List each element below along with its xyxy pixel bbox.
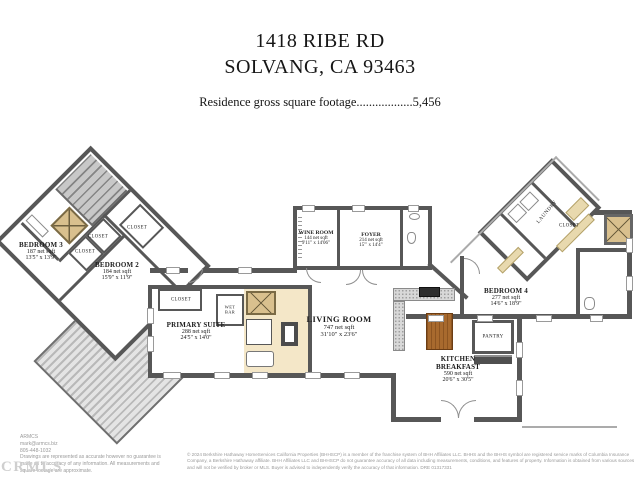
window: [147, 336, 154, 352]
room-name: BEDROOM 2: [95, 261, 139, 269]
closet-label: CLOSET: [88, 235, 108, 240]
door-arc: [346, 270, 361, 285]
address-line2: SOLVANG, CA 93463: [0, 54, 640, 80]
preparer-name: ARMCS: [20, 434, 172, 441]
room-label-living-room: LIVING ROOM 747 net sqft 31'10" x 23'6": [306, 314, 371, 338]
closet-label: CLOSET: [75, 250, 95, 255]
room-sqft: 747 net sqft: [306, 324, 371, 331]
wall: [474, 417, 522, 422]
room-dims: 20'6" x 30'5": [436, 377, 480, 383]
room-label-bedroom2: BEDROOM 2 184 net sqft 15'9" x 11'9": [95, 261, 139, 281]
wall: [517, 316, 522, 422]
sink: [409, 213, 420, 220]
window: [626, 238, 633, 253]
preparer-email: mark@armcs.biz: [20, 441, 172, 448]
toilet: [584, 297, 595, 310]
window: [238, 267, 252, 274]
room-name: BREAKFAST: [436, 363, 480, 371]
door-arc: [188, 268, 203, 283]
door-arc: [458, 400, 476, 418]
window: [166, 267, 180, 274]
window: [214, 372, 230, 379]
door-arc: [306, 268, 321, 283]
closet-label: CLOSET: [171, 298, 191, 303]
room-label-wine-room: WINE ROOM 144 net sqft 9'11" x 14'06": [299, 230, 334, 246]
door-arc: [441, 400, 459, 418]
room-dims: 24'5" x 14'0": [167, 335, 226, 341]
wall: [337, 210, 340, 266]
room-label-primary-suite: PRIMARY SUITE 288 net sqft 24'5" x 14'0": [167, 321, 226, 341]
address-line1: 1418 RIBE RD: [0, 28, 640, 54]
window: [516, 342, 523, 358]
page-title: 1418 RIBE RD SOLVANG, CA 93463: [0, 28, 640, 80]
fireplace: [281, 322, 298, 346]
kitchen-counter: [393, 301, 405, 351]
wall: [391, 373, 396, 422]
square-footage-line: Residence gross square footage..........…: [0, 95, 640, 110]
pantry-label: PANTRY: [482, 335, 503, 340]
wall: [400, 210, 403, 266]
window: [516, 380, 523, 396]
door-arc: [464, 258, 480, 274]
room-dims: 9'11" x 14'06": [299, 241, 334, 246]
window: [352, 205, 365, 212]
bathtub: [246, 351, 274, 367]
room-name: KITCHEN: [436, 355, 480, 363]
window: [302, 205, 315, 212]
preparer-phone: 805-448-1032: [20, 448, 172, 455]
wall: [391, 417, 441, 422]
toilet: [407, 232, 416, 244]
wall: [576, 250, 580, 316]
room-label-bedroom4: BEDROOM 4 277 net sqft 14'6" x 18'9": [484, 287, 528, 307]
stove: [419, 287, 440, 297]
water-closet: [246, 319, 272, 345]
room-label-bedroom3: BEDROOM 3 187 net sqft 13'5" x 13'9": [19, 241, 63, 261]
room-name: LIVING ROOM: [306, 314, 371, 324]
window: [408, 205, 419, 212]
wet-bar-label: WET BAR: [222, 305, 238, 316]
shower: [246, 291, 276, 315]
crmls-watermark: CRMLS: [1, 459, 63, 476]
window: [590, 315, 603, 322]
room-name: BEDROOM 3: [19, 241, 63, 249]
room-dims: 31'10" x 23'6": [306, 331, 371, 338]
room-dims: 13'5" x 13'9": [19, 255, 63, 261]
door-arc: [362, 270, 377, 285]
room-dims: 15'9" x 11'9": [95, 275, 139, 281]
room-label-foyer: FOYER 214 net sqft 15'" x 14'4": [359, 232, 383, 248]
window: [428, 315, 444, 322]
closet-label: CLOSET: [559, 224, 579, 229]
window: [305, 372, 321, 379]
window: [477, 315, 493, 322]
patio-line: [522, 426, 617, 428]
vanity: [26, 214, 49, 237]
closet-label: CLOSET: [127, 226, 147, 231]
window: [344, 372, 360, 379]
window: [252, 372, 268, 379]
window: [147, 308, 154, 324]
window: [163, 372, 181, 379]
floor-plan-page: { "header": { "address_line1": "1418 RIB…: [0, 0, 640, 493]
brokerage-disclaimer: © 2024 Berkshire Hathaway HomeServices C…: [187, 452, 635, 471]
wall: [576, 248, 629, 252]
window: [626, 276, 633, 291]
room-dims: 14'6" x 18'9": [484, 301, 528, 307]
room-label-kitchen-breakfast: KITCHEN BREAKFAST 590 net sqft 20'6" x 3…: [436, 355, 480, 383]
window: [536, 315, 552, 322]
room-name: BEDROOM 4: [484, 287, 528, 295]
room-dims: 15'" x 14'4": [359, 243, 383, 248]
room-name: PRIMARY SUITE: [167, 321, 226, 329]
